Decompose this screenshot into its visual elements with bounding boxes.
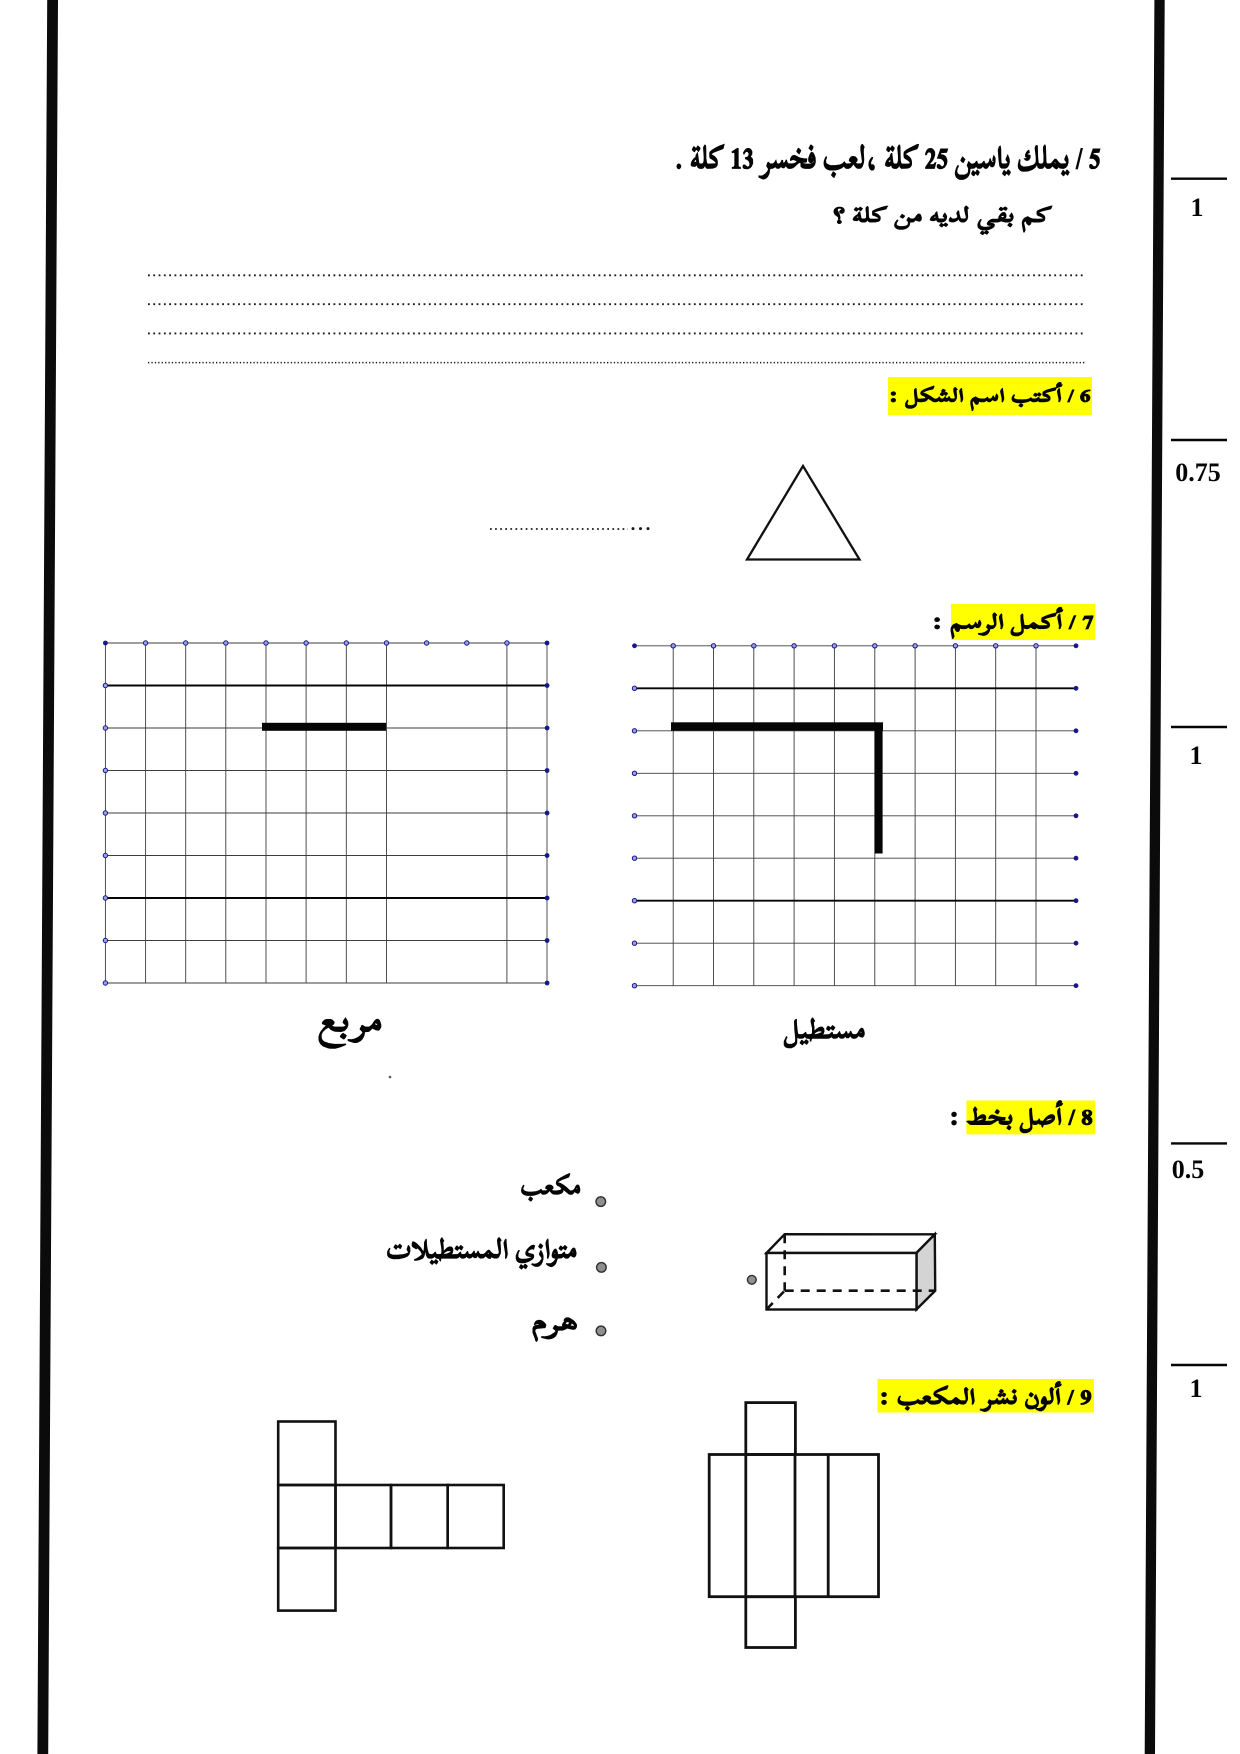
- svg-text:1: 1: [1190, 1374, 1203, 1403]
- svg-text:0.75: 0.75: [1175, 458, 1221, 487]
- svg-text:1: 1: [1191, 193, 1204, 222]
- svg-text:1: 1: [1190, 741, 1203, 770]
- svg-text:0.5: 0.5: [1172, 1155, 1205, 1184]
